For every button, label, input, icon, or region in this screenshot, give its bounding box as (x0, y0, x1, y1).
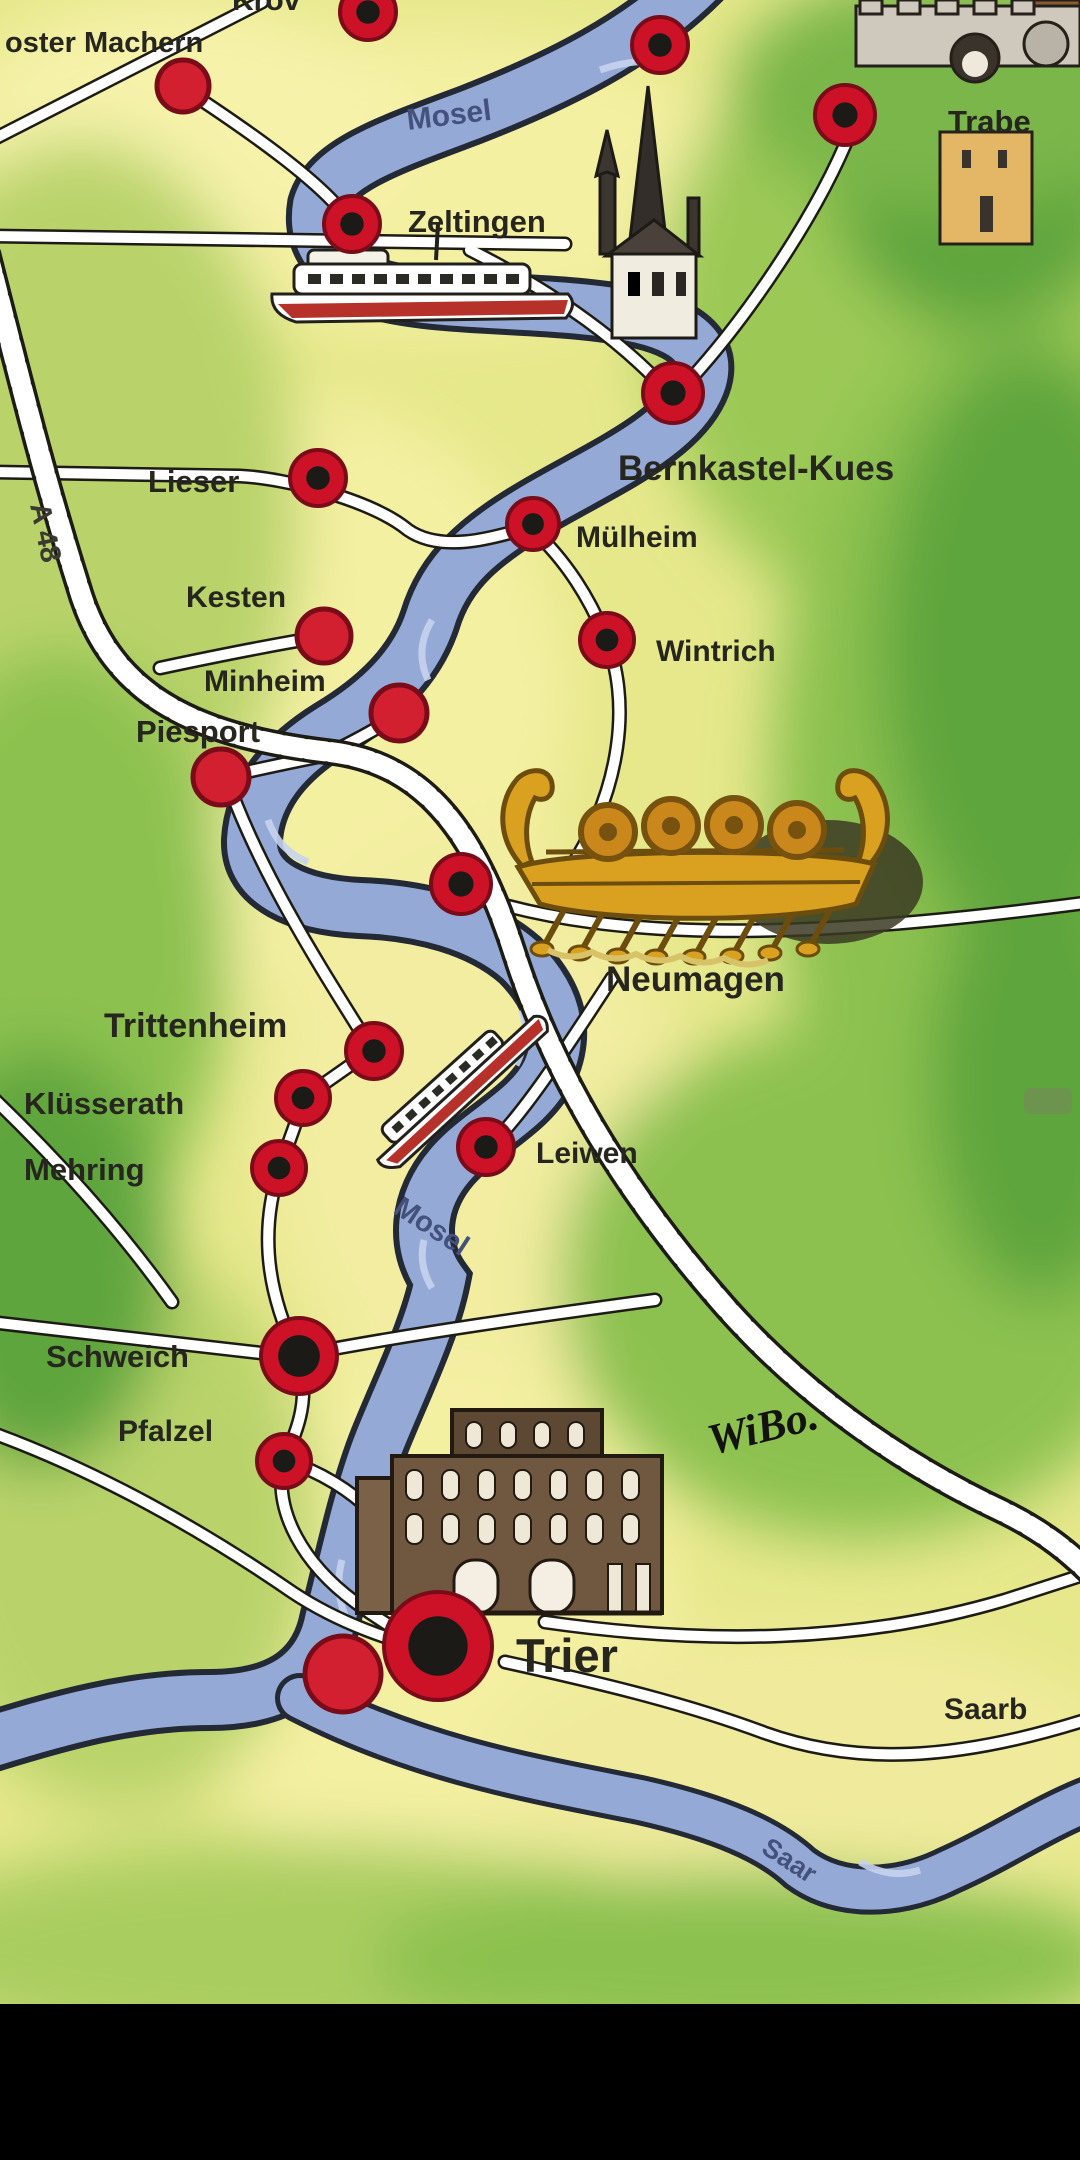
label-minheim: Minheim (204, 665, 326, 698)
town-dot-traben (815, 85, 875, 145)
castle-dome (1024, 22, 1068, 66)
town-dot-muelheim (507, 498, 559, 550)
label-trier: Trier (516, 1629, 618, 1682)
faint-mark (1024, 1088, 1072, 1114)
town-dot-uerzig (632, 17, 688, 73)
label-kesten: Kesten (186, 581, 286, 614)
town-dot-kluesserath (276, 1071, 330, 1125)
label-neumagen: Neumagen (606, 960, 785, 999)
label-trittenheim: Trittenheim (104, 1007, 287, 1045)
screenshot-stage: Krövoster MachernZeltingenTrabeBernkaste… (0, 0, 1080, 2160)
porta-left-wing (357, 1478, 395, 1613)
porta-gate-arch-2 (530, 1560, 574, 1613)
church-side-spire (600, 172, 615, 254)
town-dot-bernkastel (643, 363, 703, 423)
town-dot-leiwen (458, 1119, 514, 1175)
label-mehring: Mehring (24, 1152, 145, 1187)
mosel-map: Krövoster MachernZeltingenTrabeBernkaste… (0, 0, 1080, 2004)
label-saarburg: Saarb (944, 1693, 1027, 1726)
black-bottom-bar (0, 2004, 1080, 2160)
label-pfalzel: Pfalzel (118, 1415, 213, 1448)
town-dot-wintrich (580, 613, 634, 667)
label-kluesserath: Klüsserath (24, 1086, 184, 1121)
label-piesport: Piesport (136, 714, 260, 749)
label-kroev: Kröv (232, 0, 301, 17)
town-dot-piesport (193, 749, 249, 805)
town-dot-neumagen (431, 854, 491, 914)
town-dot-trier-small (305, 1636, 381, 1712)
town-dot-pfalzel (257, 1434, 311, 1488)
label-lieser: Lieser (148, 464, 239, 499)
town-dot-machern (157, 60, 209, 112)
label-kloster-machern: oster Machern (5, 27, 203, 59)
town-dot-lieser (290, 450, 346, 506)
town-dot-trittenheim (346, 1023, 402, 1079)
town-dot-schweich (261, 1318, 337, 1394)
label-muelheim: Mülheim (576, 521, 698, 554)
town-dot-minheim (371, 685, 427, 741)
town-dot-kesten (297, 609, 351, 663)
town-dot-kroev (340, 0, 396, 40)
label-leiwen: Leiwen (536, 1137, 638, 1170)
label-schweich: Schweich (46, 1339, 189, 1374)
town-dot-mehring (252, 1141, 306, 1195)
town-dot-trier-main (384, 1592, 492, 1700)
label-zeltingen: Zeltingen (408, 204, 546, 239)
label-wintrich: Wintrich (656, 635, 776, 668)
label-bernkastel-kues: Bernkastel-Kues (618, 449, 894, 488)
town-dot-zeltingen (324, 196, 380, 252)
map-canvas: Krövoster MachernZeltingenTrabeBernkaste… (0, 0, 1080, 2004)
label-traben: Trabe (948, 104, 1031, 139)
